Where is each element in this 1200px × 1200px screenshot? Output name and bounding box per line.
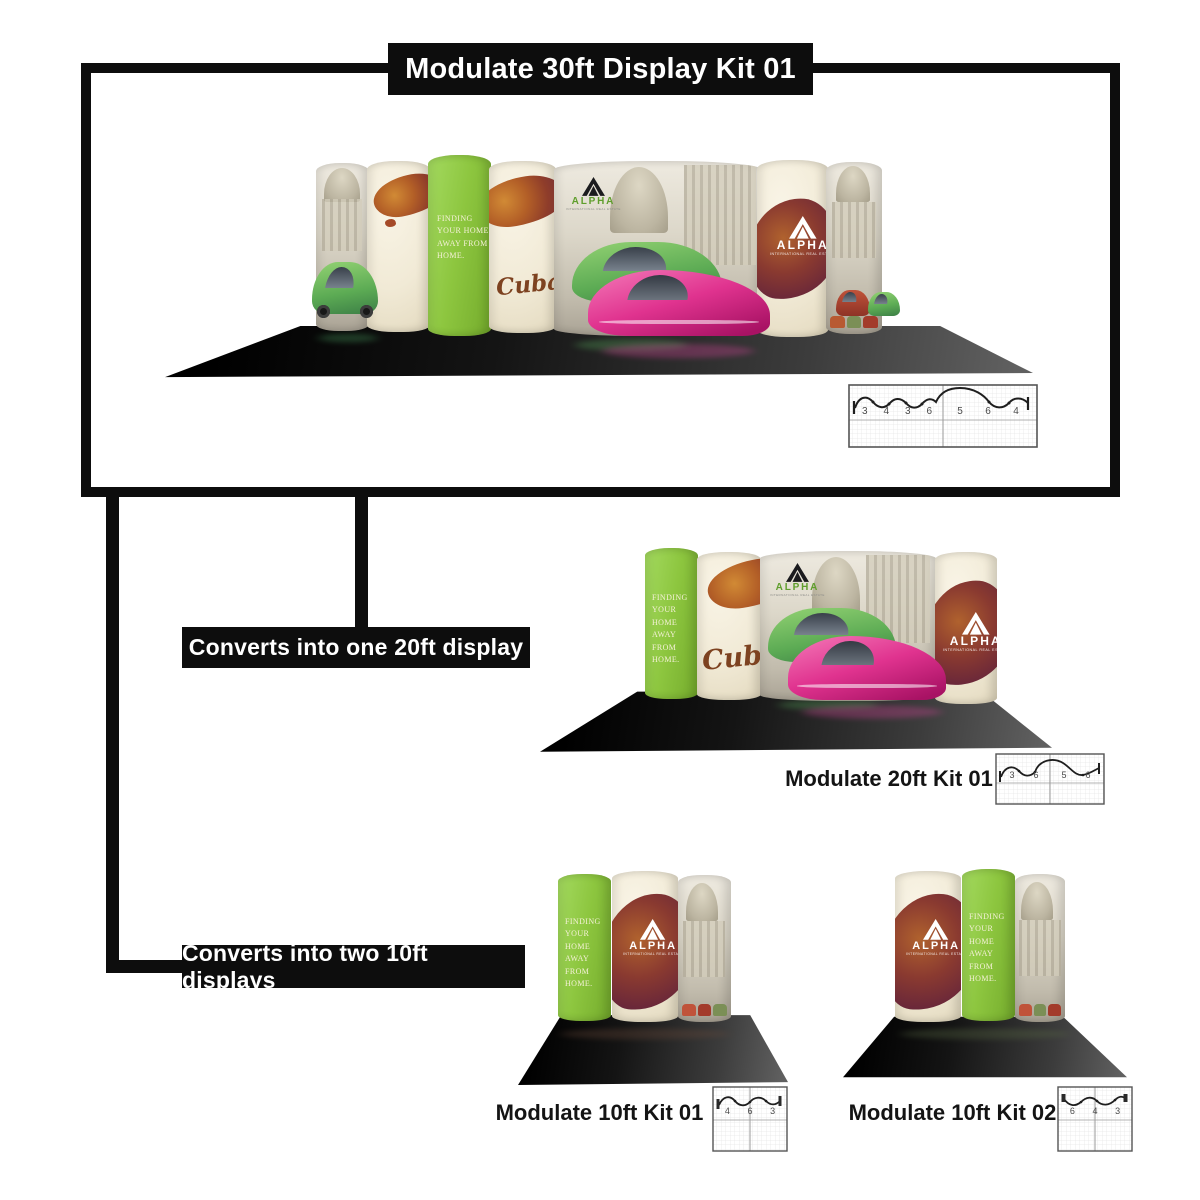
booth10a-floor: [518, 1013, 788, 1085]
alpha-brand-subtext: INTERNATIONAL REAL ESTATE: [566, 207, 621, 211]
building-dome-icon: [324, 168, 360, 202]
tagline-line: AWAY FROM: [969, 948, 1015, 973]
alpha-mark-icon: [789, 216, 817, 239]
alpha-logo-white: ALPHA INTERNATIONAL REAL ESTATE: [770, 216, 828, 256]
schematic-number: 5: [1061, 771, 1066, 780]
tagline-text: FINDING YOUR HOME AWAY FROM HOME.: [652, 592, 698, 666]
schematic-number: 6: [1070, 1107, 1075, 1116]
booth20-reflection-pink: [802, 705, 942, 718]
tagline-line: YOUR HOME: [652, 604, 698, 629]
alpha-brand-text: ALPHA: [950, 635, 997, 649]
kit30-layout-schematic: 3 4 3 6 5 6 4: [848, 384, 1038, 448]
cuba-map-icon: [704, 553, 761, 613]
branch-label-20ft: Converts into one 20ft display: [182, 627, 530, 668]
tagline-line: AWAY FROM: [437, 238, 489, 250]
branch-label-20ft-text: Converts into one 20ft display: [189, 634, 523, 661]
mini-car-icon: [863, 316, 878, 328]
building-columns-icon: [683, 921, 725, 977]
tagline-line: HOME.: [437, 250, 489, 262]
kit10a-caption-text: Modulate 10ft Kit 01: [496, 1100, 704, 1125]
alpha-logo-white: ALPHA INTERNATIONAL REAL ESTATE: [623, 919, 678, 956]
schematic-number: 6: [1085, 771, 1090, 780]
schematic-number: 6: [985, 407, 991, 417]
cuba-map-icon: [370, 169, 430, 221]
booth10b-floor: [843, 1014, 1127, 1082]
street-cars-icon: [830, 316, 878, 328]
booth10a-panel-green: FINDING YOUR HOME AWAY FROM HOME.: [558, 874, 611, 1021]
mini-car-icon: [830, 316, 845, 328]
kit10b-caption: Modulate 10ft Kit 02: [845, 1100, 1060, 1126]
tagline-line: FINDING: [565, 916, 611, 928]
street-cars-icon: [1019, 1004, 1061, 1016]
tagline-line: HOME.: [969, 973, 1015, 985]
building-columns-icon: [1019, 920, 1061, 976]
alpha-mark-icon: [962, 612, 990, 635]
schematic-number: 4: [883, 407, 889, 417]
vintage-car-small-right2: [868, 292, 900, 316]
cuba-script-text: Cuba: [495, 270, 556, 300]
alpha-logo-dark: ALPHA INTERNATIONAL REAL ESTATE: [770, 563, 825, 597]
tagline-line: YOUR HOME: [437, 225, 489, 237]
schematic-number: 3: [770, 1107, 775, 1116]
cuba-map-island-icon: [385, 219, 396, 227]
schematic-number: 6: [747, 1107, 752, 1116]
cuba-map-icon: [489, 171, 556, 231]
schematic-number: 3: [1009, 771, 1014, 780]
building-columns-icon: [832, 202, 876, 258]
booth10a-panel-alpha: ALPHA INTERNATIONAL REAL ESTATE: [612, 871, 678, 1022]
schematic-number: 3: [862, 407, 868, 417]
schematic-numbers-right: 5 6 4: [946, 407, 1030, 417]
schematic-number: 6: [1033, 771, 1038, 780]
alpha-brand-text: ALPHA: [572, 196, 615, 208]
booth10a-panel-havana: [678, 875, 731, 1022]
schematic-number: 4: [1092, 1107, 1097, 1116]
booth30-reflection-pink: [602, 344, 754, 358]
kit30-title: Modulate 30ft Display Kit 01: [405, 53, 796, 86]
alpha-brand-subtext: INTERNATIONAL REAL ESTATE: [943, 648, 997, 652]
schematic-number: 6: [926, 407, 932, 417]
kit20-caption-text: Modulate 20ft Kit 01: [785, 766, 993, 791]
mini-car-icon: [1048, 1004, 1061, 1016]
building-dome-icon: [836, 166, 870, 202]
branch-label-10ft-text: Converts into two 10ft displays: [182, 940, 525, 994]
tagline-line: YOUR HOME: [565, 928, 611, 953]
mini-car-icon: [1019, 1004, 1032, 1016]
schematic-drawing: [1057, 1086, 1133, 1152]
building-columns-icon: [322, 199, 362, 251]
alpha-logo-dark: ALPHA INTERNATIONAL REAL ESTATE: [566, 177, 621, 211]
street-cars-icon: [682, 1004, 727, 1016]
tagline-line: AWAY FROM: [652, 629, 698, 654]
schematic-number: 3: [905, 407, 911, 417]
alpha-brand-subtext: INTERNATIONAL REAL ESTATE: [770, 252, 828, 256]
tagline-line: AWAY FROM: [565, 953, 611, 978]
connector-horizontal-10ft: [106, 960, 182, 973]
alpha-logo-white: ALPHA INTERNATIONAL REAL ESTATE: [906, 919, 961, 956]
page: Modulate 30ft Display Kit 01 FINDING YOU…: [0, 0, 1200, 1200]
kit10b-caption-text: Modulate 10ft Kit 02: [849, 1100, 1057, 1125]
tagline-line: HOME.: [652, 654, 698, 666]
booth10b-panel-green: FINDING YOUR HOME AWAY FROM HOME.: [962, 869, 1015, 1021]
mini-car-icon: [713, 1004, 727, 1016]
kit20-layout-schematic: 3 6 5 6: [995, 753, 1105, 805]
tagline-text: FINDING YOUR HOME AWAY FROM HOME.: [969, 911, 1015, 985]
alpha-mark-icon: [923, 919, 948, 940]
tagline-line: HOME.: [565, 978, 611, 990]
schematic-drawing: [712, 1086, 788, 1152]
kit10a-layout-schematic: 4 6 3: [712, 1086, 788, 1152]
mini-car-icon: [847, 316, 862, 328]
alpha-brand-text: ALPHA: [777, 239, 828, 253]
mini-car-icon: [682, 1004, 696, 1016]
connector-vertical-10ft: [106, 492, 119, 973]
connector-vertical-20ft: [355, 492, 368, 627]
schematic-number: 5: [957, 407, 963, 417]
alpha-brand-text: ALPHA: [776, 582, 819, 594]
schematic-number: 4: [725, 1107, 730, 1116]
tagline-line: FINDING: [969, 911, 1015, 923]
tagline-line: FINDING: [437, 213, 489, 225]
schematic-number: 4: [1013, 407, 1019, 417]
building-dome-icon: [1021, 882, 1053, 920]
booth20-panel-green: FINDING YOUR HOME AWAY FROM HOME.: [645, 548, 698, 699]
tagline-line: YOUR HOME: [969, 923, 1015, 948]
schematic-numbers: 6 4 3: [1061, 1107, 1129, 1116]
alpha-brand-subtext: INTERNATIONAL REAL ESTATE: [770, 593, 825, 597]
building-dome-icon: [686, 883, 718, 921]
schematic-numbers-left: 3 4 3 6: [854, 407, 940, 417]
kit10a-caption: Modulate 10ft Kit 01: [492, 1100, 707, 1126]
booth10a-reflection: [560, 1029, 730, 1040]
booth20-panel-cuba: Cuba: [697, 552, 761, 700]
tagline-text: FINDING YOUR HOME AWAY FROM HOME.: [437, 213, 489, 263]
tagline-line: FINDING: [652, 592, 698, 604]
branch-label-10ft: Converts into two 10ft displays: [182, 945, 525, 988]
alpha-mark-icon: [582, 177, 605, 196]
schematic-numbers-right: 5 6: [1052, 771, 1100, 780]
alpha-brand-subtext: INTERNATIONAL REAL ESTATE: [623, 952, 678, 956]
booth10b-panel-havana: [1015, 874, 1065, 1022]
alpha-brand-subtext: INTERNATIONAL REAL ESTATE: [906, 952, 961, 956]
booth30-panel-green: FINDING YOUR HOME AWAY FROM HOME.: [428, 155, 491, 336]
kit30-title-banner: Modulate 30ft Display Kit 01: [388, 43, 813, 95]
alpha-logo-white: ALPHA INTERNATIONAL REAL ESTATE: [943, 612, 997, 652]
vintage-car-small-right: [836, 290, 870, 316]
alpha-brand-text: ALPHA: [629, 940, 677, 953]
booth30-reflection-car-left: [318, 334, 378, 343]
schematic-numbers: 4 6 3: [716, 1107, 784, 1116]
kit10b-layout-schematic: 6 4 3: [1057, 1086, 1133, 1152]
car-wheels-icon: [317, 305, 372, 318]
booth30-panel-cuba: Cuba: [489, 161, 556, 333]
alpha-mark-icon: [640, 919, 665, 940]
alpha-mark-icon: [786, 563, 809, 582]
booth10b-reflection: [900, 1029, 1070, 1040]
schematic-number: 3: [1115, 1107, 1120, 1116]
booth10b-panel-alpha: ALPHA INTERNATIONAL REAL ESTATE: [895, 871, 961, 1022]
mini-car-icon: [698, 1004, 712, 1016]
tagline-text: FINDING YOUR HOME AWAY FROM HOME.: [565, 916, 611, 990]
cuba-script-text: Cuba: [701, 640, 761, 675]
kit20-caption: Modulate 20ft Kit 01: [769, 766, 1009, 792]
mini-car-icon: [1034, 1004, 1047, 1016]
alpha-brand-text: ALPHA: [912, 940, 960, 953]
